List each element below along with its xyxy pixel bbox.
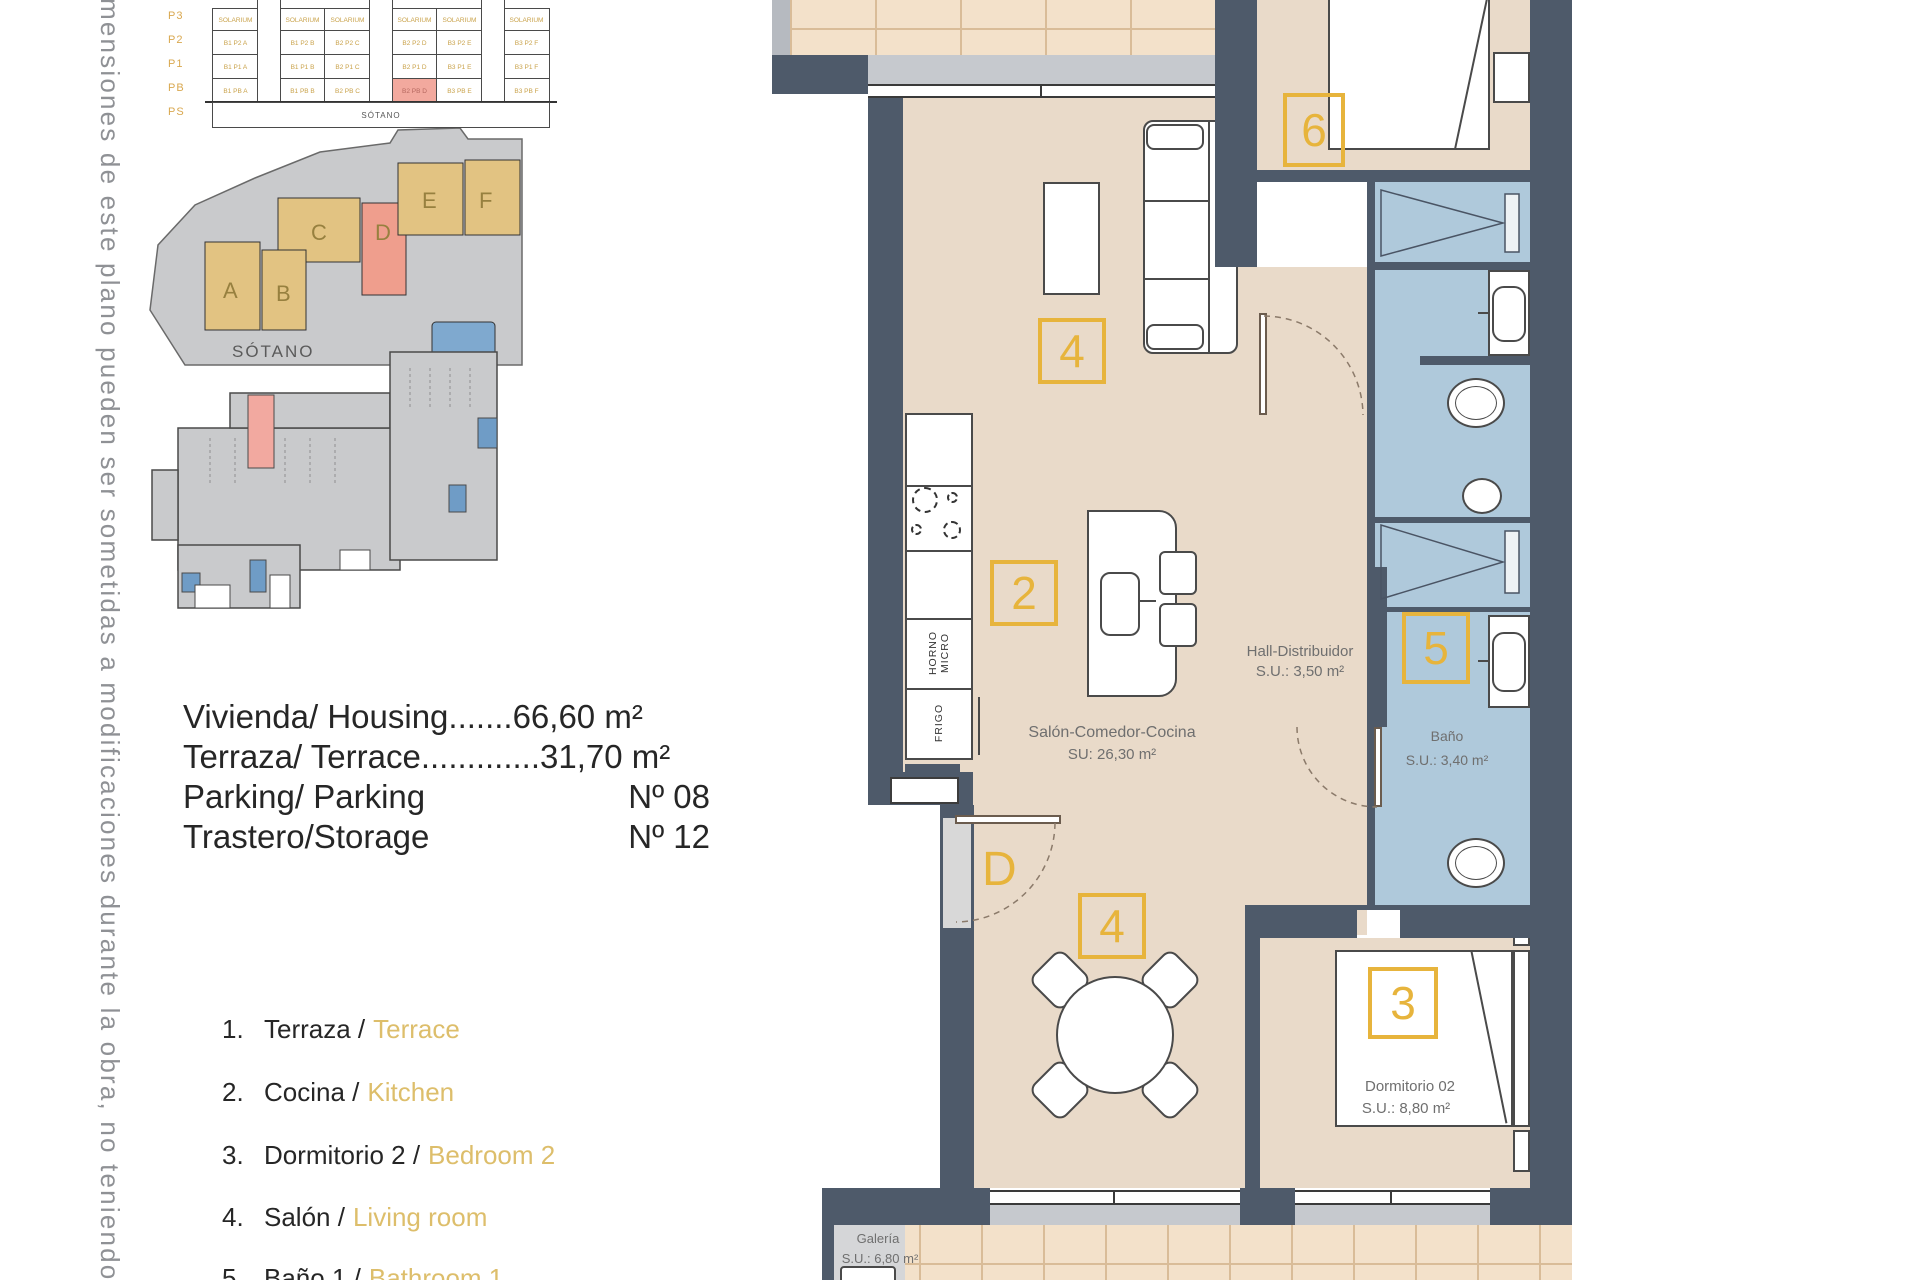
sotano-storage-highlighted <box>248 395 274 468</box>
stool <box>1159 603 1197 647</box>
floorplan-sheet: imensiones de este plano pueden ser some… <box>0 0 1920 1280</box>
wall-left-upper <box>868 94 903 772</box>
building-letter: C <box>311 220 327 245</box>
floor-label: PS <box>168 106 185 118</box>
bed-pillow-strip <box>1513 950 1530 1127</box>
coffee-table <box>1043 182 1100 295</box>
door-lintel <box>1357 905 1400 910</box>
galeria-tiles <box>905 1225 1572 1280</box>
dining-table <box>1057 977 1173 1093</box>
bidet <box>1462 478 1502 514</box>
sotano-slab <box>152 352 497 608</box>
room-tag-4: 4 <box>1038 318 1106 384</box>
section-cell: B2 P1 C <box>324 54 371 80</box>
legend-es: Salón / <box>264 1202 345 1232</box>
floor-label: P1 <box>168 58 183 70</box>
terrace-area-line: Terraza/ Terrace.............31,70 m² <box>183 737 710 777</box>
floor-label: P2 <box>168 34 183 46</box>
wall <box>772 55 868 94</box>
terrace-edge <box>772 0 790 55</box>
entrance-door-letter: D <box>982 842 1017 897</box>
wardrobe <box>1377 521 1528 605</box>
legend-item: 4.Salón /Living room <box>222 1202 487 1233</box>
section-cell: SOLARIUM <box>436 8 483 32</box>
legend-en: Kitchen <box>367 1077 454 1107</box>
section-cell: B1 P1 B <box>279 54 326 80</box>
bathroom-label: Baño <box>1431 728 1464 744</box>
sofa-seat-divider <box>1145 200 1208 202</box>
sink-faucet <box>1478 660 1490 662</box>
toilet-seat <box>1455 386 1497 420</box>
building-letter: B <box>276 281 291 306</box>
room-tag-6: 6 <box>1283 93 1345 167</box>
legend-number: 2. <box>222 1077 264 1108</box>
legend-item: 5.Baño 1 /Bathroom 1 <box>222 1263 503 1280</box>
floor-label: PB <box>168 82 185 94</box>
galeria-label: Galería <box>857 1231 900 1246</box>
window-bottom-left <box>990 1190 1240 1205</box>
stair-tower <box>257 0 281 104</box>
building-letter: F <box>479 188 492 213</box>
wall-galeria <box>822 1188 938 1225</box>
housing-area-line: Vivienda/ Housing.......66,60 m² <box>183 697 710 737</box>
floor-label: P3 <box>168 10 183 22</box>
parking-label: Parking/ Parking <box>183 777 425 817</box>
room-tag-3: 3 <box>1368 967 1438 1039</box>
legend-es: Dormitorio 2 / <box>264 1140 420 1170</box>
cooktop-burner <box>943 521 961 539</box>
section-cell: B1 P2 A <box>212 30 259 56</box>
storage-line: Trastero/Storage Nº 12 <box>183 817 710 857</box>
section-cell: SOLARIUM <box>279 8 326 32</box>
cooktop-burner <box>912 487 938 513</box>
parking-number: Nº 08 <box>628 777 710 817</box>
disclaimer-vertical-text: imensiones de este plano pueden ser some… <box>89 0 131 1280</box>
hall-label: Hall-Distribuidor <box>1247 643 1354 660</box>
sotano-plan <box>140 348 530 614</box>
legend-en: Terrace <box>373 1014 460 1044</box>
sofa-seat-divider <box>1145 278 1208 280</box>
wardrobe <box>1377 186 1528 260</box>
wall-living-bedroom1 <box>1215 0 1257 267</box>
section-cell: SOLARIUM <box>503 8 550 32</box>
microwave-label: MICRO <box>939 633 951 673</box>
living-room-area: SU: 26,30 m² <box>1068 746 1156 763</box>
sofa-armrest <box>1146 324 1204 350</box>
window-sill <box>990 1205 1240 1225</box>
site-plan: A B C D E F <box>145 128 525 368</box>
bathroom2-door-swing <box>1297 727 1378 808</box>
legend-en: Living room <box>353 1202 487 1232</box>
stair-tower <box>481 0 505 104</box>
wall-bottom <box>938 1188 990 1225</box>
section-cell: B1 P2 B <box>279 30 326 56</box>
bathroom-area: S.U.: 3,40 m² <box>1406 752 1488 768</box>
section-cell: B2 P1 D <box>391 54 438 80</box>
wall-right-outer <box>1530 0 1572 1225</box>
section-cell: B3 P2 E <box>436 30 483 56</box>
terrace-tiles <box>790 0 1215 55</box>
sink-faucet <box>1478 312 1490 314</box>
cooktop-burner <box>911 524 922 535</box>
hall-area: S.U.: 3,50 m² <box>1256 663 1344 680</box>
section-cell: SOLARIUM <box>324 8 371 32</box>
building-f <box>465 160 520 235</box>
wall-bedroom1-bottom <box>1257 170 1530 182</box>
nightstand <box>1493 52 1530 103</box>
building-letter: A <box>223 278 238 303</box>
section-cell: B2 P2 D <box>391 30 438 56</box>
legend-es: Baño 1 / <box>264 1263 361 1280</box>
living-room-label: Salón-Comedor-Cocina <box>1028 724 1195 742</box>
washing-machine <box>840 1266 896 1280</box>
legend-en: Bedroom 2 <box>428 1140 555 1170</box>
storage-number: Nº 12 <box>628 817 710 857</box>
fridge-label: FRIGO <box>933 704 945 742</box>
wall-bottom-pier <box>1240 1188 1295 1225</box>
window-bottom-right <box>1295 1190 1490 1205</box>
wall-bedroom2-top-left <box>1245 905 1357 938</box>
legend-es: Terraza / <box>264 1014 365 1044</box>
nightstand <box>1513 1130 1530 1172</box>
window-step <box>890 777 959 804</box>
parking-line: Parking/ Parking Nº 08 <box>183 777 710 817</box>
legend-number: 3. <box>222 1140 264 1171</box>
legend-es: Cocina / <box>264 1077 359 1107</box>
section-cell: B3 P2 F <box>503 30 550 56</box>
section-cell: B3 P1 F <box>503 54 550 80</box>
bedroom2-area: S.U.: 8,80 m² <box>1362 1100 1450 1117</box>
cooktop-burner <box>947 492 958 503</box>
unit-info-block: Vivienda/ Housing.......66,60 m² Terraza… <box>183 697 710 857</box>
legend-number: 1. <box>222 1014 264 1045</box>
bathroom1-sink <box>1492 286 1526 342</box>
section-cell: B2 P2 C <box>324 30 371 56</box>
bathroom1-shelf <box>1420 356 1530 365</box>
galeria-area-label: S.U.: 6,80 m² <box>842 1251 919 1266</box>
section-cell: SOLARIUM <box>212 8 259 32</box>
stair-tower <box>369 0 393 104</box>
fridge-bracket <box>978 697 980 755</box>
sink-faucet <box>1140 600 1156 602</box>
room-tag-5: 5 <box>1402 612 1470 684</box>
bed-bedroom1 <box>1328 0 1490 150</box>
wall-bottom-right <box>1490 1188 1572 1225</box>
window-mullion <box>1040 84 1042 98</box>
wall-bedroom2-top-right <box>1400 905 1530 938</box>
bedroom1-door-swing <box>1263 315 1365 417</box>
legend-en: Bathroom 1 <box>369 1263 503 1280</box>
counter-divider <box>905 550 973 552</box>
oven-label: HORNO <box>927 631 939 675</box>
room-tag-2: 2 <box>990 560 1058 626</box>
legend-item: 1.Terraza /Terrace <box>222 1014 460 1045</box>
legend-item: 3.Dormitorio 2 /Bedroom 2 <box>222 1140 555 1171</box>
window-sill <box>1295 1205 1490 1225</box>
wall-dining-bedroom2 <box>1245 905 1260 1188</box>
building-letter: E <box>422 188 437 213</box>
legend-number: 5. <box>222 1263 264 1280</box>
stool <box>1159 551 1197 595</box>
section-cell: SOLARIUM <box>391 8 438 32</box>
room-tag-4b: 4 <box>1078 893 1146 959</box>
island-sink <box>1100 572 1140 636</box>
window-mullion <box>1113 1190 1115 1205</box>
window-mullion <box>1390 1190 1392 1205</box>
section-cell: B1 P1 A <box>212 54 259 80</box>
legend-item: 2.Cocina /Kitchen <box>222 1077 454 1108</box>
legend-number: 4. <box>222 1202 264 1233</box>
section-basement-cell: SÓTANO <box>212 102 550 128</box>
oven-microwave: HORNO MICRO <box>907 620 971 686</box>
toilet-seat <box>1455 846 1497 880</box>
window-sill-top <box>868 55 1215 84</box>
storage-label: Trastero/Storage <box>183 817 429 857</box>
fridge: FRIGO <box>907 690 971 756</box>
section-cell: B3 P1 E <box>436 54 483 80</box>
building-letter: D <box>375 220 391 245</box>
bedroom2-label: Dormitorio 02 <box>1365 1078 1455 1095</box>
sofa-backrest <box>1208 122 1210 352</box>
wall-galeria-left <box>822 1225 834 1280</box>
bathroom2-sink <box>1492 632 1526 692</box>
wall-thin <box>1375 262 1530 270</box>
sofa-armrest <box>1146 124 1204 150</box>
counter-divider <box>905 485 973 487</box>
